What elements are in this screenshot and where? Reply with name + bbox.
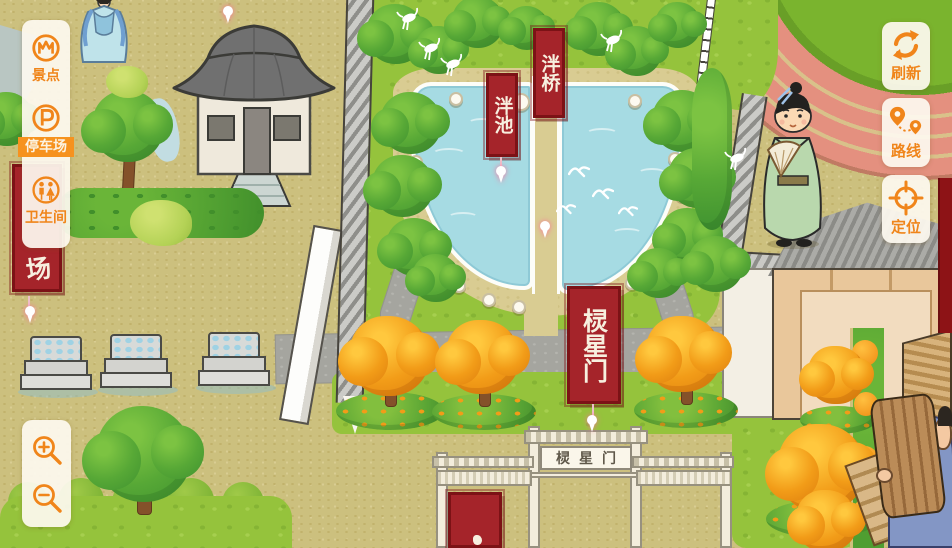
zoom-controls (22, 420, 71, 527)
path-below-pond (524, 288, 558, 336)
zoom-in-icon[interactable] (30, 433, 64, 467)
route-button[interactable]: 路线 (882, 98, 930, 167)
route-icon (888, 104, 924, 140)
dove-bird (568, 164, 590, 178)
route-label: 路线 (891, 142, 921, 162)
light-bush (106, 66, 148, 98)
pond-pillar (628, 94, 642, 108)
crane-bird (396, 6, 422, 34)
autumn-tree (808, 346, 866, 404)
autumn-tree (646, 316, 722, 392)
sidebar-item-label: 卫生间 (25, 209, 67, 227)
sidebar-item-label: 景点 (32, 67, 60, 85)
tree (372, 155, 434, 217)
restroom-icon (30, 174, 62, 206)
scholar-character (748, 78, 838, 250)
gate-pillar (528, 426, 540, 548)
poi-banner-right-edge (938, 178, 952, 333)
water-streak (432, 148, 466, 160)
gate-pillar (630, 426, 642, 548)
map-pin-marker[interactable] (539, 221, 551, 239)
water-streak (448, 212, 478, 222)
map-pin-marker[interactable] (586, 415, 598, 433)
crane-bird (724, 146, 750, 174)
gate-beam-left (432, 456, 534, 468)
poi-banner-lingxing-gate[interactable]: 棂星门 (567, 286, 621, 404)
water-streak (612, 228, 642, 238)
gate-plaque: 棂星门 (540, 446, 632, 470)
tree (634, 248, 684, 298)
gate-lattice-left (436, 470, 532, 486)
tree (688, 236, 744, 292)
gate-beam-thin (524, 472, 648, 478)
sidebar-panel: 景点 停车场 卫生间 (22, 20, 70, 248)
autumn-tree (350, 316, 430, 396)
gate-lattice-right (636, 470, 732, 486)
map-canvas[interactable]: 棂星门 (0, 0, 952, 548)
locate-label: 定位 (891, 218, 921, 238)
light-bush (130, 200, 192, 246)
sidebar-item-scenic-spots[interactable]: 景点 (30, 32, 62, 85)
stone-basin (198, 332, 274, 394)
autumn-tree (446, 320, 520, 394)
water-streak (586, 128, 618, 139)
tree (380, 92, 442, 154)
sidebar-item-restroom[interactable]: 卫生间 (25, 174, 67, 227)
locate-button[interactable]: 定位 (882, 175, 930, 243)
statue-scholar-hand (876, 468, 893, 483)
refresh-icon (889, 28, 923, 62)
poi-banner-label: 场 (23, 254, 51, 282)
map-pin-marker[interactable] (495, 166, 507, 184)
tree (452, 0, 504, 48)
pond-pillar (512, 300, 526, 314)
tree (92, 90, 164, 162)
poi-banner-bottom-partial[interactable] (448, 492, 502, 548)
statue-figure (68, 0, 140, 68)
house (168, 8, 340, 208)
dove-bird (618, 204, 638, 217)
zoom-out-icon[interactable] (30, 481, 64, 515)
tree (96, 406, 192, 502)
sidebar-item-label: 停车场 (18, 137, 74, 157)
crane-bird (440, 52, 466, 80)
crane-bird (600, 28, 626, 56)
sidebar-item-parking[interactable]: 停车场 (18, 102, 74, 157)
stone-basin (100, 334, 176, 396)
statue-scholar-hair (938, 406, 952, 426)
parking-icon (30, 102, 62, 134)
banner-glyph-fragment (473, 535, 482, 545)
tree (655, 2, 701, 48)
poi-banner-pan-pond[interactable]: 泮池 (486, 73, 518, 157)
map-pin-marker[interactable] (24, 306, 36, 324)
pond-pillar (449, 92, 463, 106)
refresh-button[interactable]: 刷新 (882, 22, 930, 90)
poi-banner-pan-bridge[interactable]: 泮桥 (533, 28, 565, 118)
pond-pillar (482, 293, 496, 307)
locate-icon (888, 180, 924, 216)
scenic-spots-icon (30, 32, 62, 64)
dove-bird (592, 186, 614, 200)
dove-bird (556, 202, 576, 215)
map-pin-marker[interactable] (222, 6, 234, 24)
autumn-tree (796, 490, 858, 548)
gate-beam-right (632, 456, 734, 468)
stone-basin (20, 336, 96, 398)
tree (412, 254, 460, 302)
refresh-label: 刷新 (891, 64, 921, 84)
